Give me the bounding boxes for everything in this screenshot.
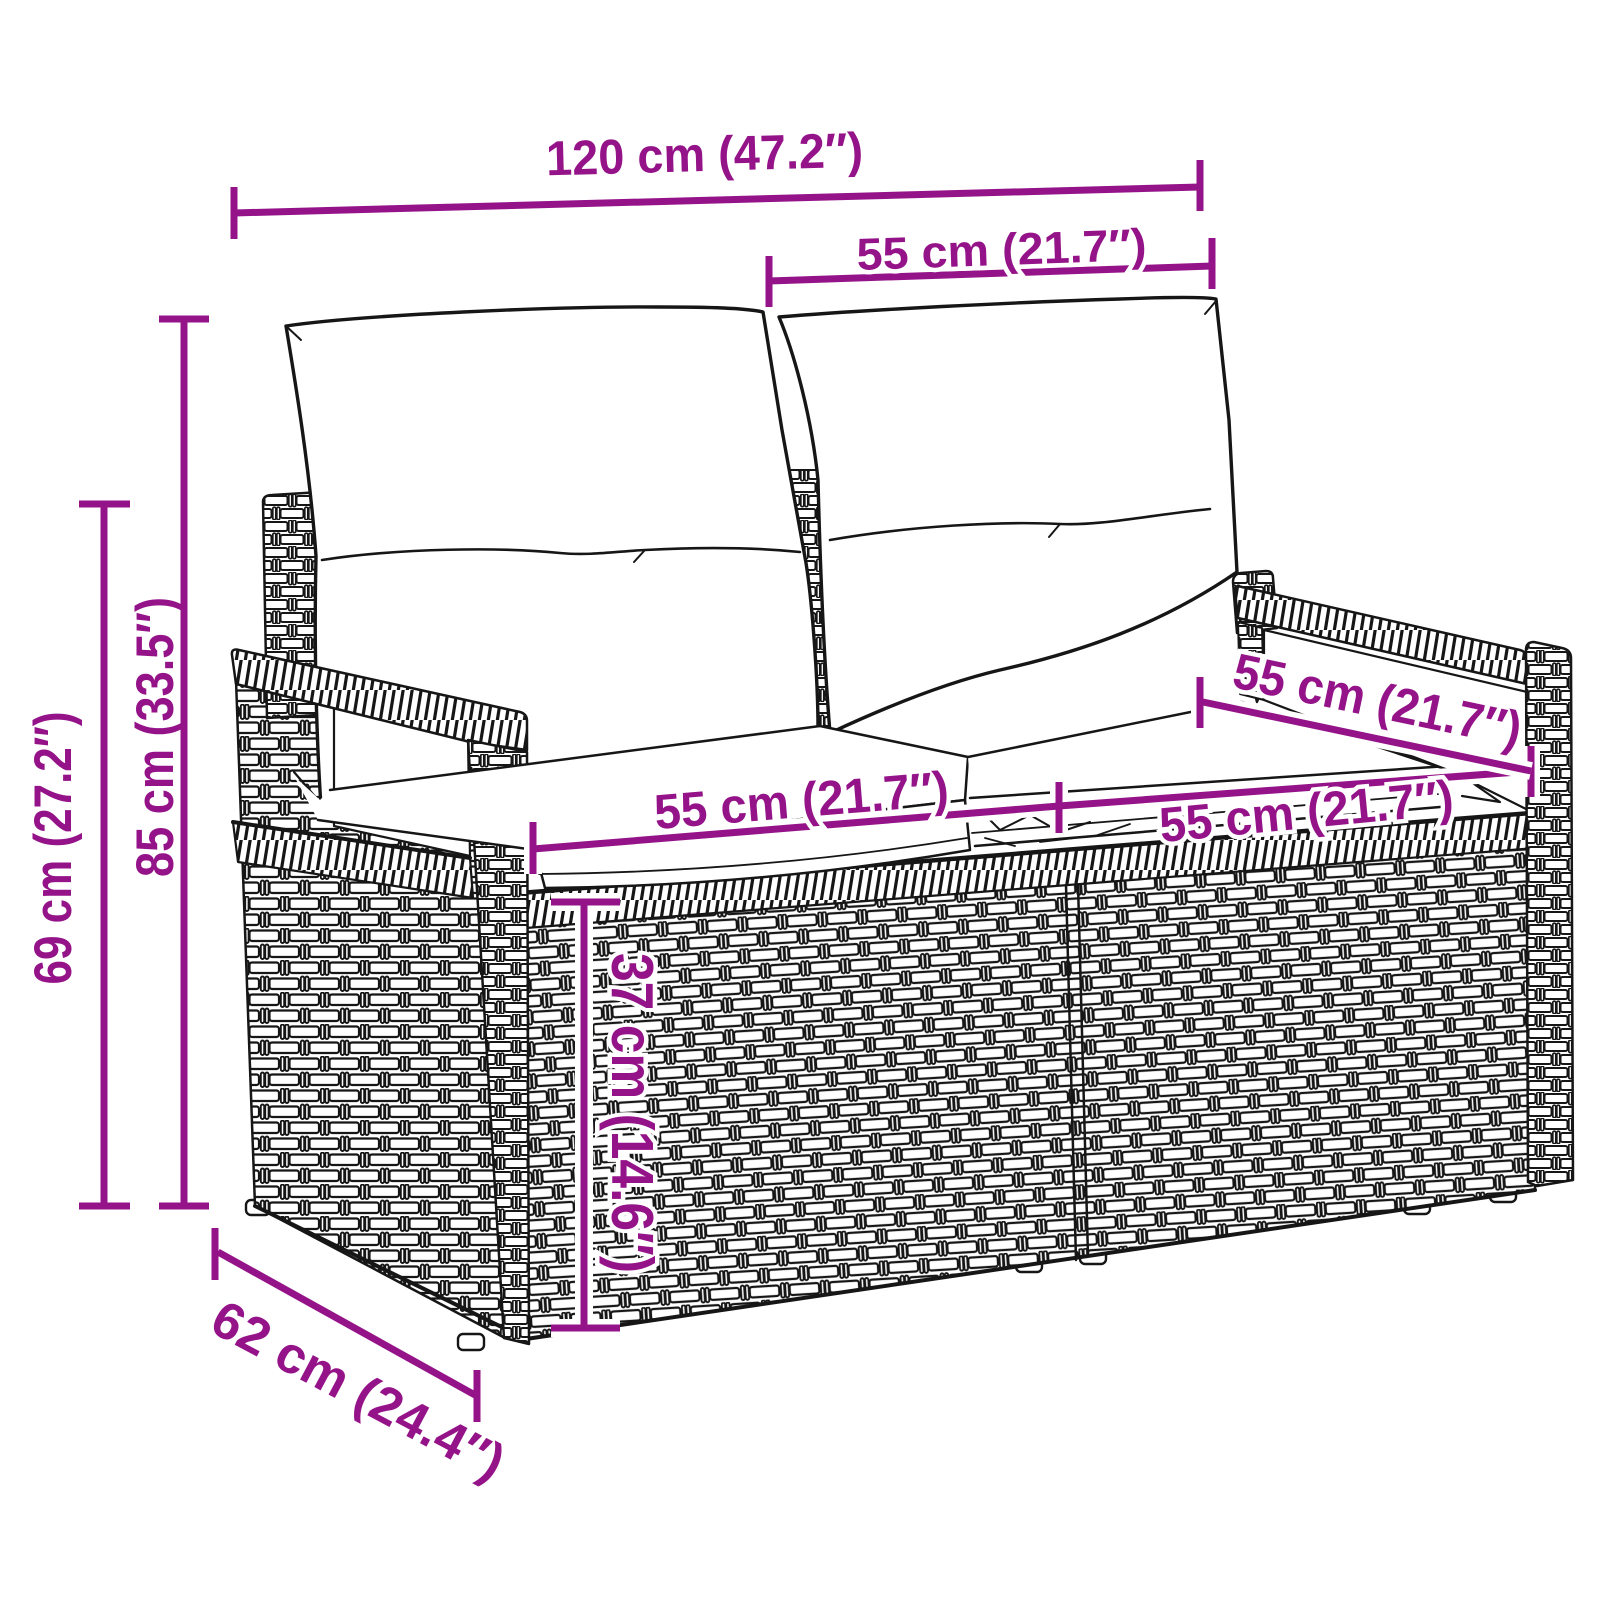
svg-text:37 cm (14.6″): 37 cm (14.6″) xyxy=(599,953,665,1273)
svg-text:55 cm (21.7″): 55 cm (21.7″) xyxy=(856,219,1148,280)
svg-text:120 cm (47.2″): 120 cm (47.2″) xyxy=(545,124,863,187)
svg-text:69 cm (27.2″): 69 cm (27.2″) xyxy=(24,712,83,985)
svg-text:85 cm (33.5″): 85 cm (33.5″) xyxy=(126,597,185,877)
